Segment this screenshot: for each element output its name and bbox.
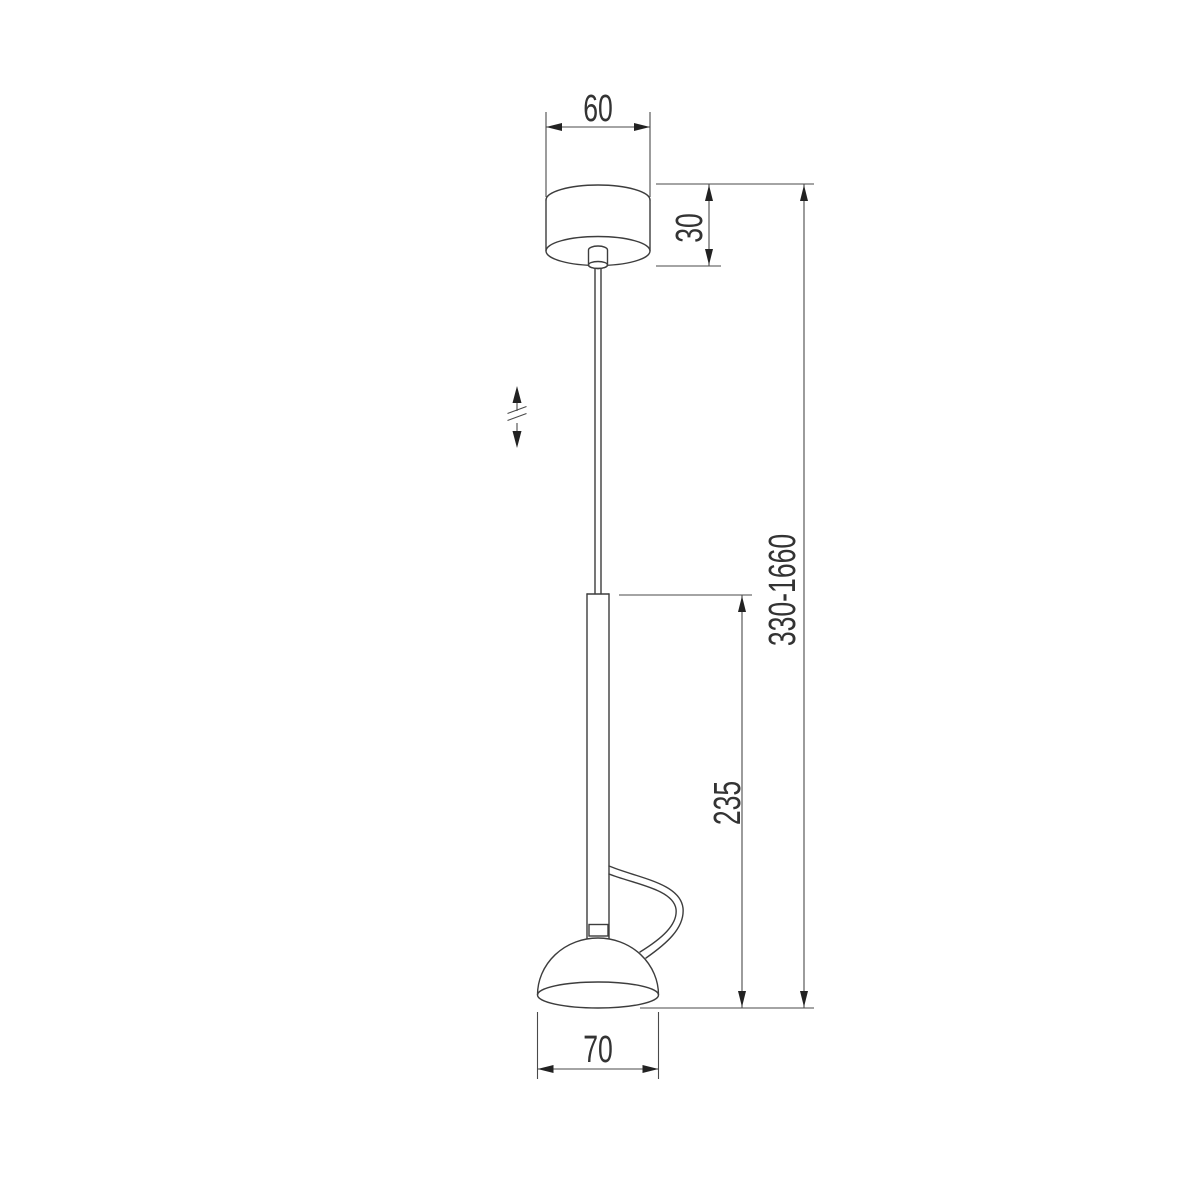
suspension-cable — [595, 269, 601, 594]
dimension-overall-height: 330-1660 — [760, 184, 808, 1008]
adjust-down-arrowhead — [513, 431, 522, 448]
height-adjustable-icon — [508, 386, 527, 448]
dim-label-canopy-height: 30 — [667, 213, 710, 243]
canopy-top-arc — [546, 185, 650, 200]
cord-loop-inner-line — [609, 874, 676, 952]
arrowhead-right — [643, 1065, 659, 1073]
arrowhead-left — [546, 123, 562, 131]
dimension-canopy-height: 30 — [656, 184, 721, 266]
dimension-canopy-width: 60 — [546, 86, 650, 197]
arrowhead-up — [800, 185, 808, 201]
stem-rod-fill — [588, 595, 609, 940]
dim-label-body-height: 235 — [705, 781, 748, 825]
technical-drawing: 60 30 235 330-1660 — [0, 0, 1200, 1200]
dim-label-shade-width: 70 — [583, 1027, 613, 1070]
adjust-up-arrowhead — [513, 386, 522, 403]
shade-dome-silhouette — [538, 938, 659, 995]
lamp-shade — [538, 938, 659, 1008]
cable-gland — [589, 246, 608, 269]
pendant-lamp-dimension-diagram: 60 30 235 330-1660 — [0, 0, 1200, 1200]
arrowhead-right — [634, 123, 650, 131]
rod-shade-connector — [589, 925, 608, 937]
arrowhead-down — [800, 991, 808, 1007]
dimension-body-height: 235 — [619, 595, 752, 1008]
dim-label-canopy-width: 60 — [583, 86, 613, 129]
arrowhead-down — [738, 991, 746, 1007]
arrowhead-left — [538, 1065, 554, 1073]
arrowhead-up — [705, 185, 713, 201]
arrowhead-down — [705, 249, 713, 265]
cable-gland-body — [589, 246, 608, 269]
stem-rod — [587, 594, 609, 941]
arrowhead-up — [738, 596, 746, 612]
dim-label-overall-height: 330-1660 — [760, 534, 803, 646]
dimension-shade-width: 70 — [538, 1012, 659, 1079]
adjust-break-mark-2 — [508, 414, 527, 421]
